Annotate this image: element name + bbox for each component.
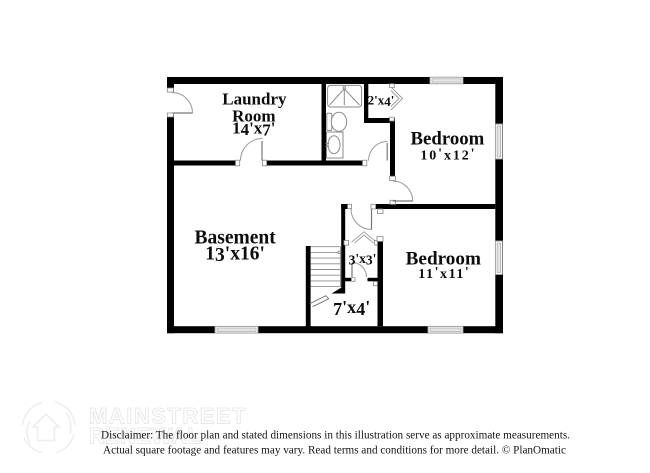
svg-text:3'x3': 3'x3' [349,251,377,268]
svg-text:Actual square footage and feat: Actual square footage and features may v… [103,444,566,456]
svg-text:2'x4': 2'x4' [368,92,395,109]
svg-text:11'x11': 11'x11' [418,265,470,282]
svg-text:10'x12': 10'x12' [420,147,476,164]
svg-text:14'x7': 14'x7' [232,119,275,140]
svg-text:7'x4': 7'x4' [333,297,370,319]
svg-text:13'x16': 13'x16' [205,243,265,266]
svg-text:Disclaimer: The floor plan and: Disclaimer: The floor plan and stated di… [101,430,570,442]
